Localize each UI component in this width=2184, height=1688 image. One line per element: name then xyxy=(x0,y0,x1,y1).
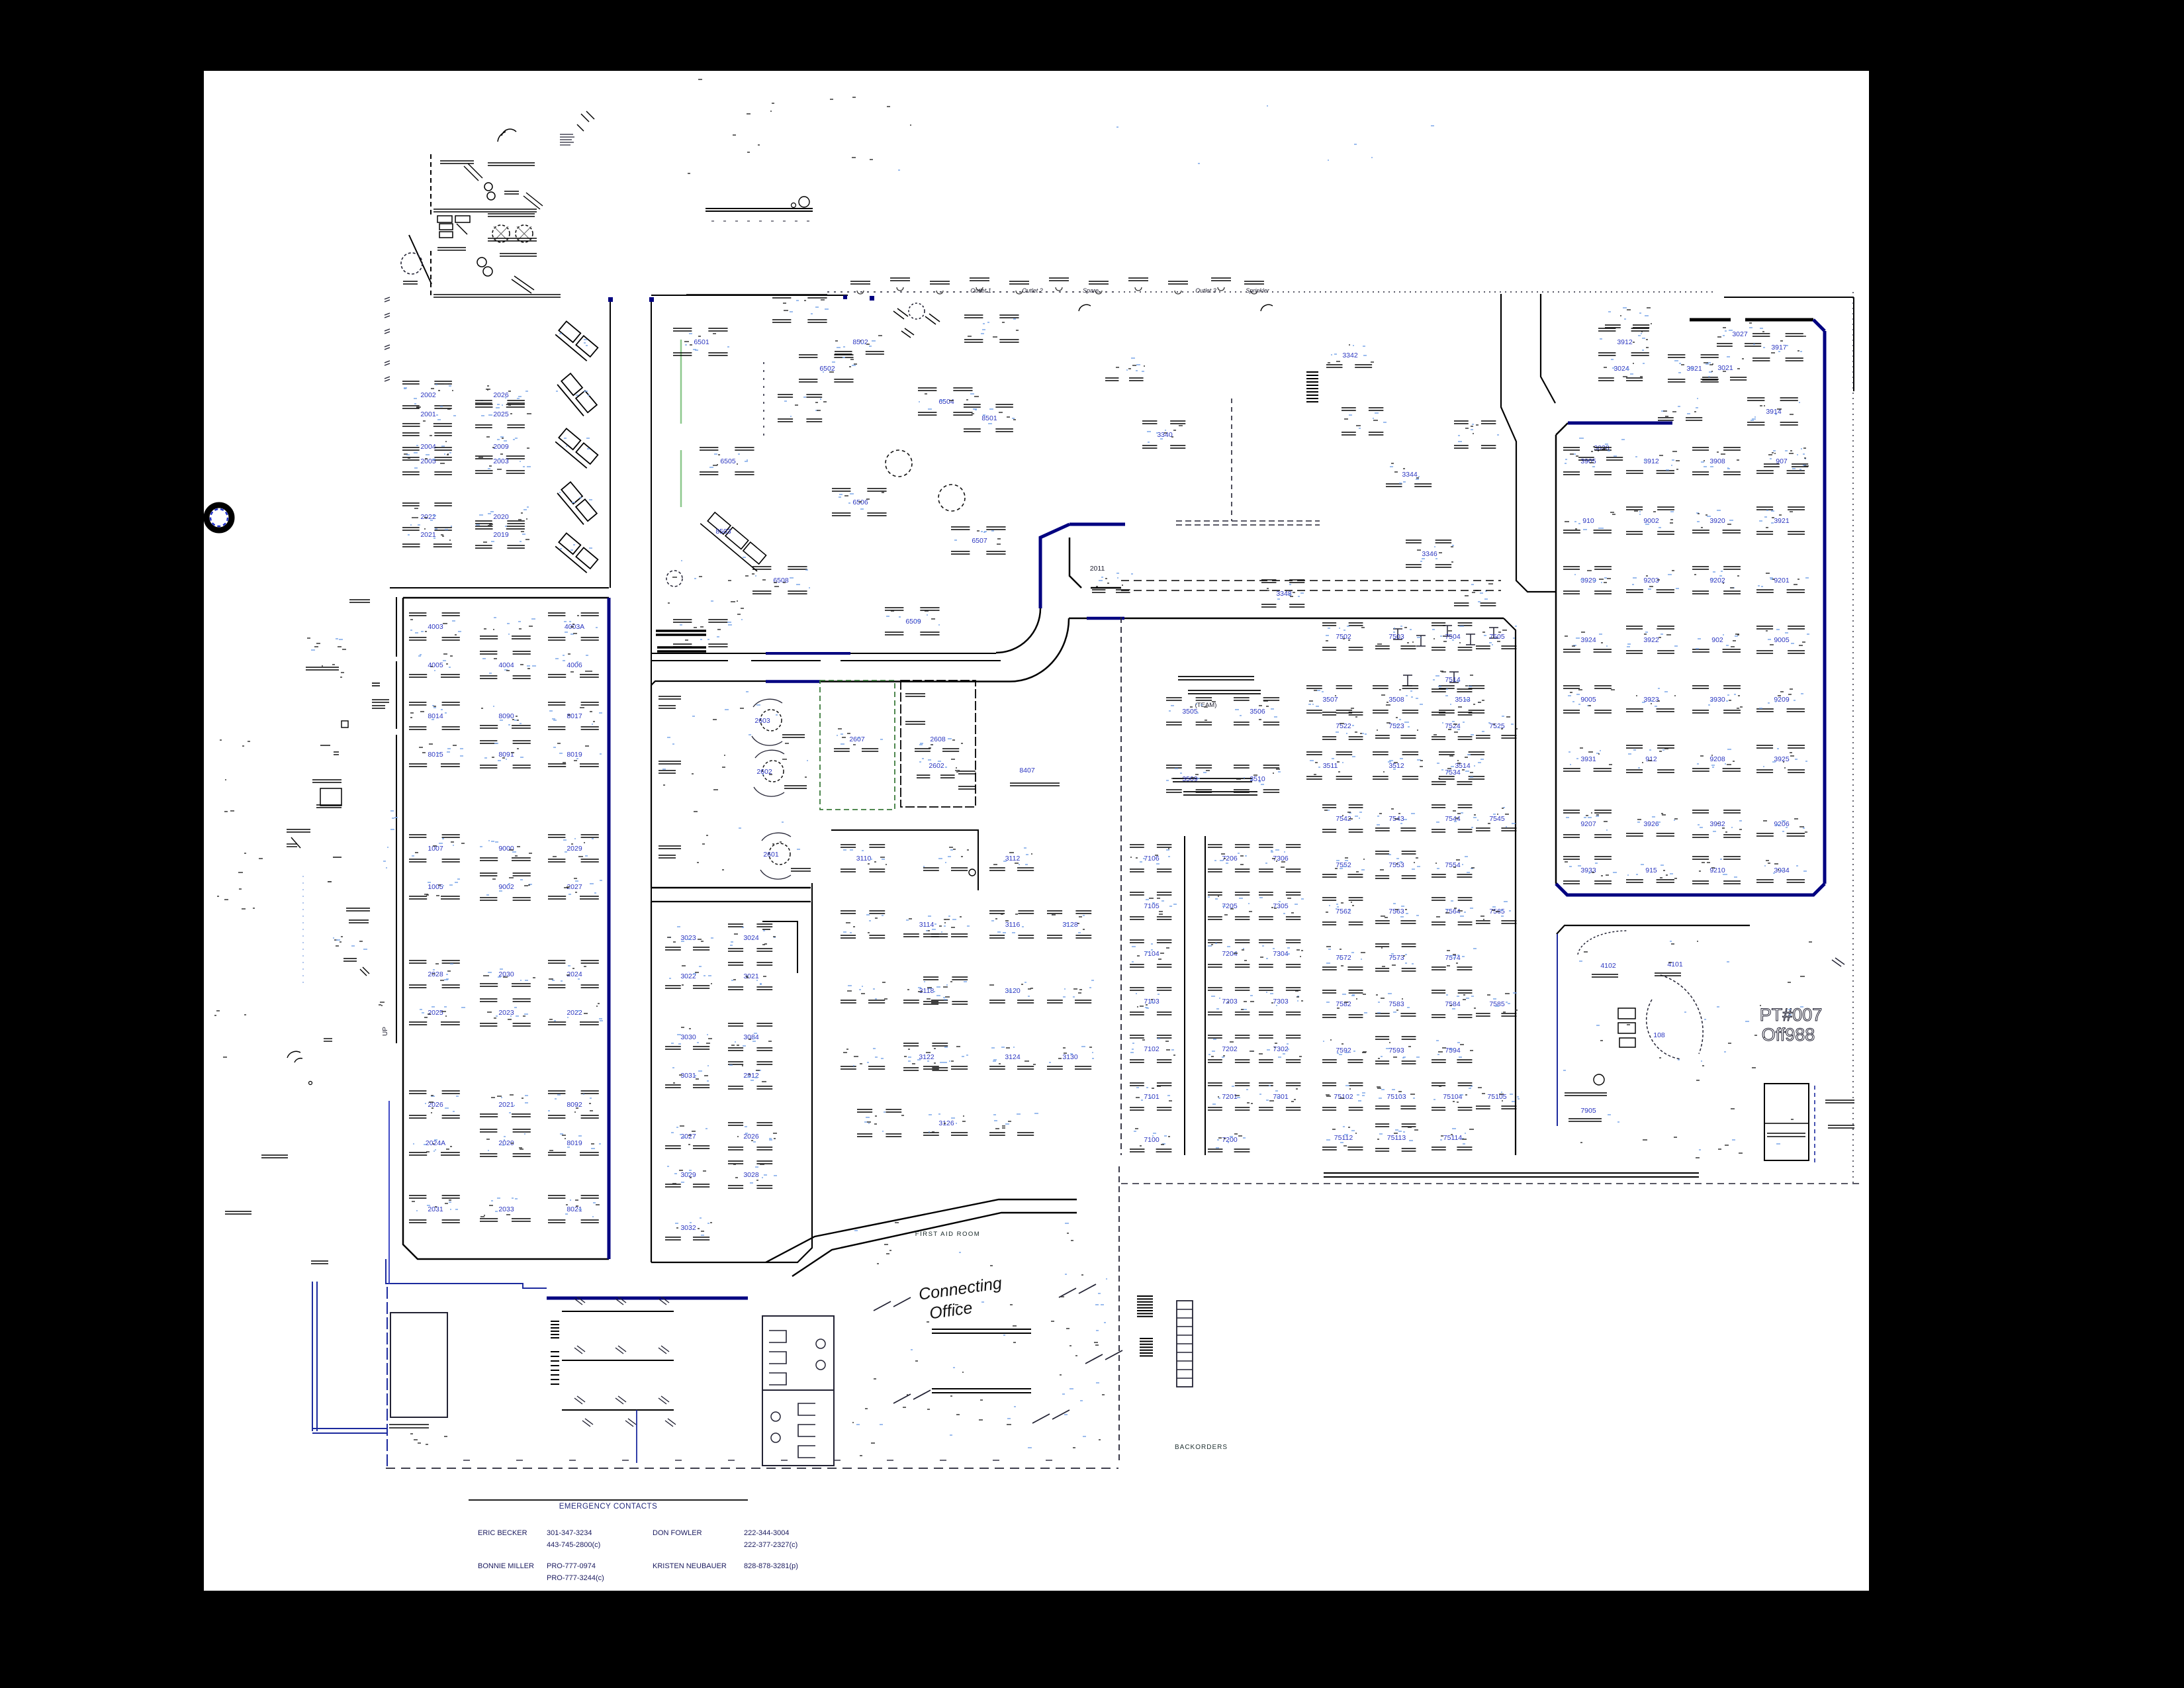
svg-text:7544: 7544 xyxy=(1445,815,1461,823)
svg-text:6507: 6507 xyxy=(972,537,987,545)
svg-text:7584: 7584 xyxy=(1445,1000,1461,1008)
svg-text:1005: 1005 xyxy=(428,883,443,891)
svg-text:6504: 6504 xyxy=(938,398,954,406)
svg-text:2025: 2025 xyxy=(428,1009,443,1017)
svg-text:2024: 2024 xyxy=(567,970,582,978)
svg-text:7100: 7100 xyxy=(1144,1136,1160,1144)
svg-text:3921: 3921 xyxy=(1774,517,1790,525)
svg-text:912: 912 xyxy=(1645,755,1657,763)
svg-text:Sprinkler: Sprinkler xyxy=(1246,287,1270,294)
svg-text:7103: 7103 xyxy=(1144,998,1160,1006)
svg-text:KRISTEN NEUBAUER: KRISTEN NEUBAUER xyxy=(653,1562,727,1570)
svg-text:3924: 3924 xyxy=(1580,636,1596,644)
svg-text:3027: 3027 xyxy=(1732,330,1748,338)
svg-text:3028: 3028 xyxy=(743,1171,759,1179)
svg-text:3905: 3905 xyxy=(1580,457,1596,465)
svg-text:4005: 4005 xyxy=(428,661,443,669)
svg-text:3032: 3032 xyxy=(680,1224,696,1232)
svg-text:9000: 9000 xyxy=(498,845,514,853)
svg-text:7301: 7301 xyxy=(1273,1093,1289,1101)
svg-text:3110: 3110 xyxy=(856,855,872,863)
svg-text:75114: 75114 xyxy=(1443,1134,1463,1142)
svg-text:3118: 3118 xyxy=(919,987,934,995)
svg-text:7564: 7564 xyxy=(1445,908,1461,915)
svg-text:7572: 7572 xyxy=(1336,954,1351,962)
svg-text:2026: 2026 xyxy=(493,391,509,399)
svg-text:2001: 2001 xyxy=(420,410,436,418)
svg-text:3116: 3116 xyxy=(1005,921,1021,929)
svg-text:7201: 7201 xyxy=(1222,1093,1238,1101)
svg-text:9209: 9209 xyxy=(1774,696,1790,704)
svg-text:2022: 2022 xyxy=(567,1009,582,1017)
svg-text:3021: 3021 xyxy=(743,972,759,980)
svg-text:8092: 8092 xyxy=(567,1101,582,1109)
svg-text:7534: 7534 xyxy=(1445,769,1461,776)
svg-text:902: 902 xyxy=(1711,636,1723,644)
svg-text:3510: 3510 xyxy=(1250,775,1265,783)
svg-text:7523: 7523 xyxy=(1388,722,1404,730)
svg-text:Outlet 2: Outlet 2 xyxy=(1022,287,1043,294)
svg-text:3030: 3030 xyxy=(680,1033,696,1041)
svg-text:8503: 8503 xyxy=(715,528,731,536)
svg-text:3923: 3923 xyxy=(1643,696,1659,704)
svg-text:7303: 7303 xyxy=(1273,998,1289,1006)
svg-text:3031: 3031 xyxy=(680,1072,696,1080)
svg-text:2021: 2021 xyxy=(498,1101,514,1109)
svg-text:3930: 3930 xyxy=(1709,696,1725,704)
svg-text:2602: 2602 xyxy=(929,762,944,770)
svg-text:4102: 4102 xyxy=(1600,962,1616,970)
svg-text:3512: 3512 xyxy=(1388,762,1404,770)
svg-text:3340: 3340 xyxy=(1157,431,1173,439)
svg-text:2028: 2028 xyxy=(428,970,443,978)
svg-text:7562: 7562 xyxy=(1336,908,1351,915)
svg-text:6501: 6501 xyxy=(694,338,709,346)
svg-text:7104: 7104 xyxy=(1144,950,1160,958)
svg-text:222-377-2327(c): 222-377-2327(c) xyxy=(744,1541,797,1549)
svg-text:108: 108 xyxy=(1653,1031,1665,1039)
svg-text:7302: 7302 xyxy=(1273,1045,1289,1053)
svg-text:7102: 7102 xyxy=(1144,1045,1160,1053)
svg-text:Outlet 3: Outlet 3 xyxy=(1195,287,1216,294)
svg-text:2601: 2601 xyxy=(763,851,779,859)
svg-text:7101: 7101 xyxy=(1144,1093,1160,1101)
svg-text:3084: 3084 xyxy=(743,1033,759,1041)
svg-text:3925: 3925 xyxy=(1774,755,1790,763)
svg-text:ERIC BECKER: ERIC BECKER xyxy=(478,1529,527,1537)
svg-text:8019: 8019 xyxy=(567,751,582,759)
svg-text:7204: 7204 xyxy=(1222,950,1238,958)
svg-text:2020: 2020 xyxy=(493,513,509,521)
svg-text:2019: 2019 xyxy=(493,531,509,539)
svg-text:3507: 3507 xyxy=(1322,696,1338,704)
svg-text:7552: 7552 xyxy=(1336,861,1351,869)
svg-text:75103: 75103 xyxy=(1387,1093,1406,1101)
svg-text:2029: 2029 xyxy=(567,845,582,853)
svg-text:6508: 6508 xyxy=(773,577,789,585)
svg-text:6509: 6509 xyxy=(905,618,921,626)
svg-text:301-347-3234: 301-347-3234 xyxy=(547,1529,592,1537)
svg-text:9005: 9005 xyxy=(1580,696,1596,704)
svg-text:Outlet 1: Outlet 1 xyxy=(970,287,991,294)
svg-text:443-745-2800(c): 443-745-2800(c) xyxy=(547,1541,600,1549)
svg-text:3024: 3024 xyxy=(1614,365,1629,373)
svg-text:7582: 7582 xyxy=(1336,1000,1351,1008)
svg-text:2022: 2022 xyxy=(420,513,436,521)
svg-text:PRO-777-3244(c): PRO-777-3244(c) xyxy=(547,1574,604,1582)
svg-text:2005: 2005 xyxy=(420,457,436,465)
svg-text:3112: 3112 xyxy=(1005,855,1021,863)
svg-text:DON FOWLER: DON FOWLER xyxy=(653,1529,702,1537)
svg-text:4004: 4004 xyxy=(498,661,514,669)
svg-text:907: 907 xyxy=(1776,457,1788,465)
svg-text:Spare: Spare xyxy=(1083,287,1099,294)
svg-text:6505: 6505 xyxy=(720,457,736,465)
svg-text:915: 915 xyxy=(1645,867,1657,874)
svg-text:8017: 8017 xyxy=(567,712,582,720)
svg-text:7905: 7905 xyxy=(1580,1107,1596,1115)
svg-text:3024: 3024 xyxy=(743,934,759,942)
svg-text:7503: 7503 xyxy=(1388,633,1404,641)
svg-text:7203: 7203 xyxy=(1222,998,1238,1006)
svg-text:3506: 3506 xyxy=(1250,708,1265,716)
svg-text:3505: 3505 xyxy=(1182,708,1198,716)
svg-text:8502: 8502 xyxy=(852,338,868,346)
svg-text:7563: 7563 xyxy=(1388,908,1404,915)
svg-text:7594: 7594 xyxy=(1445,1047,1461,1055)
svg-text:3120: 3120 xyxy=(1005,987,1021,995)
svg-text:2027: 2027 xyxy=(680,1133,696,1141)
svg-text:BACKORDERS: BACKORDERS xyxy=(1175,1444,1228,1451)
svg-text:3931: 3931 xyxy=(1580,755,1596,763)
svg-text:8407: 8407 xyxy=(1019,767,1035,774)
svg-text:8014: 8014 xyxy=(428,712,443,720)
svg-text:75102: 75102 xyxy=(1334,1093,1353,1101)
svg-text:7304: 7304 xyxy=(1273,950,1289,958)
svg-text:4003: 4003 xyxy=(428,623,443,631)
svg-text:8091: 8091 xyxy=(498,751,514,759)
svg-text:2025: 2025 xyxy=(493,410,509,418)
svg-text:8015: 8015 xyxy=(428,751,443,759)
svg-text:4101: 4101 xyxy=(1667,961,1683,968)
svg-text:3511: 3511 xyxy=(1323,762,1338,770)
svg-text:7106: 7106 xyxy=(1144,855,1160,863)
svg-text:3509: 3509 xyxy=(1182,775,1198,783)
svg-text:75112: 75112 xyxy=(1334,1134,1353,1142)
svg-text:9201: 9201 xyxy=(1774,577,1790,585)
svg-text:3028: 3028 xyxy=(1594,444,1610,452)
svg-text:3912: 3912 xyxy=(1617,338,1633,346)
svg-text:3926: 3926 xyxy=(1643,820,1659,828)
svg-text:8090: 8090 xyxy=(498,712,514,720)
svg-text:7545: 7545 xyxy=(1489,815,1505,823)
svg-text:2002: 2002 xyxy=(420,391,436,399)
svg-text:2011: 2011 xyxy=(1090,565,1105,573)
svg-text:75105: 75105 xyxy=(1487,1093,1506,1101)
svg-text:222-344-3004: 222-344-3004 xyxy=(744,1529,790,1537)
svg-text:3508: 3508 xyxy=(1388,696,1404,704)
svg-text:7573: 7573 xyxy=(1388,954,1404,962)
svg-text:2023: 2023 xyxy=(498,1009,514,1017)
svg-text:EMERGENCY CONTACTS: EMERGENCY CONTACTS xyxy=(559,1503,658,1511)
svg-text:3922: 3922 xyxy=(1643,636,1659,644)
svg-text:9203: 9203 xyxy=(1643,577,1659,585)
svg-text:3920: 3920 xyxy=(1709,517,1725,525)
svg-text:910: 910 xyxy=(1582,517,1594,525)
svg-text:3921: 3921 xyxy=(1686,365,1702,373)
svg-text:3126: 3126 xyxy=(938,1119,954,1127)
svg-text:2033: 2033 xyxy=(498,1205,514,1213)
svg-text:9207: 9207 xyxy=(1580,820,1596,828)
svg-text:8019: 8019 xyxy=(567,1139,582,1147)
svg-text:3342: 3342 xyxy=(1342,352,1358,359)
svg-text:6502: 6502 xyxy=(819,365,835,373)
svg-text:2912: 2912 xyxy=(743,1072,759,1080)
svg-text:3908: 3908 xyxy=(1709,457,1725,465)
svg-text:6506: 6506 xyxy=(852,498,868,506)
svg-text:BONNIE MILLER: BONNIE MILLER xyxy=(478,1562,534,1570)
svg-text:7105: 7105 xyxy=(1144,902,1160,910)
svg-text:3029: 3029 xyxy=(680,1171,696,1179)
svg-text:75104: 75104 xyxy=(1443,1093,1462,1101)
svg-text:3128: 3128 xyxy=(1062,921,1078,929)
svg-text:3114: 3114 xyxy=(919,921,934,929)
svg-text:7585: 7585 xyxy=(1489,1000,1505,1008)
svg-text:7583: 7583 xyxy=(1388,1000,1404,1008)
svg-text:7505: 7505 xyxy=(1489,633,1505,641)
svg-text:2603: 2603 xyxy=(754,717,770,725)
svg-text:UP: UP xyxy=(382,1027,389,1036)
svg-text:9002: 9002 xyxy=(498,883,514,891)
svg-text:3344: 3344 xyxy=(1402,471,1418,479)
svg-text:2003: 2003 xyxy=(493,457,509,465)
svg-text:9208: 9208 xyxy=(1709,755,1725,763)
svg-text:3021: 3021 xyxy=(1717,364,1733,372)
svg-text:7502: 7502 xyxy=(1336,633,1351,641)
svg-text:2608: 2608 xyxy=(930,735,946,743)
svg-text:2607: 2607 xyxy=(849,735,865,743)
svg-text:7202: 7202 xyxy=(1222,1045,1238,1053)
svg-text:3912: 3912 xyxy=(1643,457,1659,465)
svg-text:2004: 2004 xyxy=(420,443,436,451)
svg-text:FIRST AID ROOM: FIRST AID ROOM xyxy=(915,1231,980,1238)
svg-text:3932: 3932 xyxy=(1709,820,1725,828)
svg-text:3124: 3124 xyxy=(1005,1053,1021,1061)
svg-text:7514: 7514 xyxy=(1445,676,1461,684)
svg-text:828-878-3281(p): 828-878-3281(p) xyxy=(744,1562,798,1570)
svg-text:7593: 7593 xyxy=(1388,1047,1404,1055)
svg-text:2009: 2009 xyxy=(493,443,509,451)
svg-text:4006: 4006 xyxy=(567,661,582,669)
svg-text:PRO-777-0974: PRO-777-0974 xyxy=(547,1562,596,1570)
svg-text:7554: 7554 xyxy=(1445,861,1461,869)
svg-text:3346: 3346 xyxy=(1422,550,1437,558)
svg-text:7305: 7305 xyxy=(1273,902,1289,910)
svg-text:9005: 9005 xyxy=(1774,636,1790,644)
svg-text:75113: 75113 xyxy=(1387,1134,1406,1142)
svg-text:Off988: Off988 xyxy=(1762,1025,1815,1045)
svg-text:(TEAM): (TEAM) xyxy=(1195,702,1217,709)
svg-text:3122: 3122 xyxy=(919,1053,934,1061)
svg-text:3917: 3917 xyxy=(1771,344,1787,352)
